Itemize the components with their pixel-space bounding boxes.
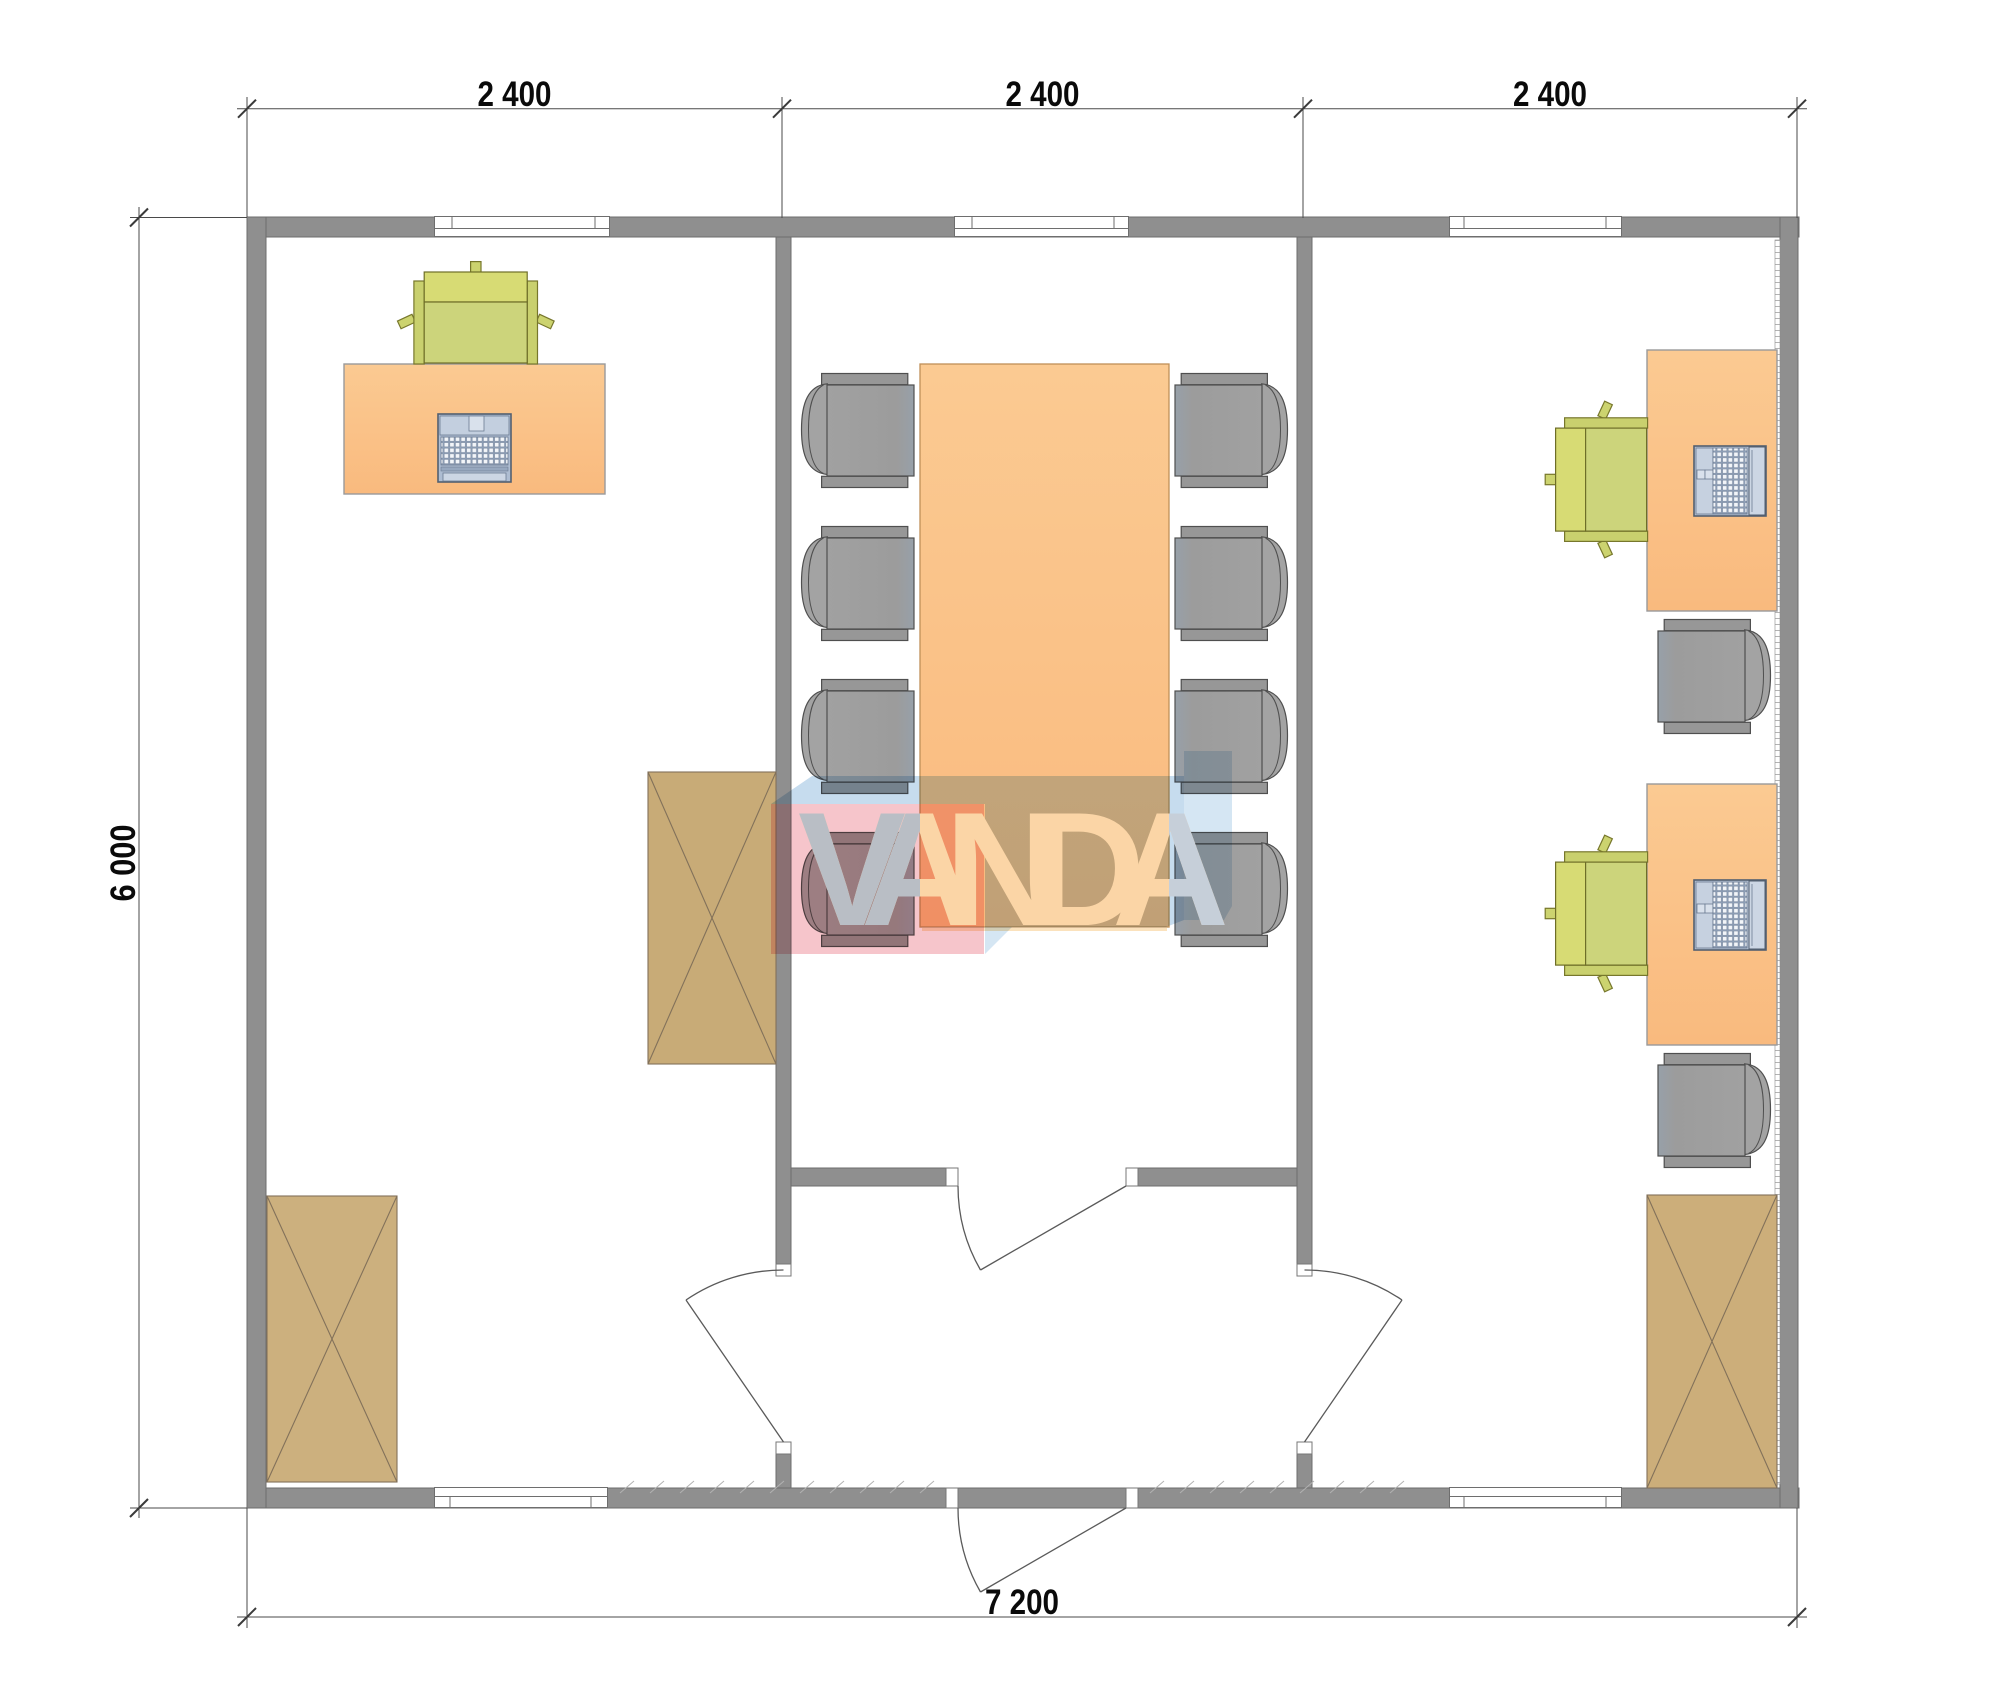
svg-text:2 400: 2 400 bbox=[1513, 75, 1587, 114]
svg-text:6 000: 6 000 bbox=[104, 825, 143, 902]
svg-text:2 400: 2 400 bbox=[478, 75, 552, 114]
svg-text:7 200: 7 200 bbox=[985, 1583, 1059, 1622]
svg-text:2 400: 2 400 bbox=[1006, 75, 1080, 114]
